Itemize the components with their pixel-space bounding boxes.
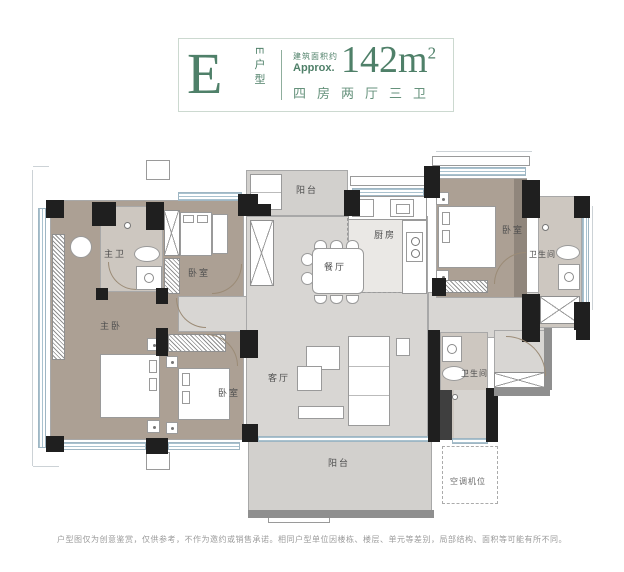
sofa: [348, 336, 390, 426]
pillow: [197, 215, 208, 223]
room-label-kitchen: 厨房: [374, 231, 396, 240]
lamp-dot: [171, 427, 174, 430]
sink-icon: [558, 264, 580, 290]
window-band: [352, 188, 424, 196]
stove-icon: [406, 232, 423, 262]
wall-segment: [522, 294, 540, 342]
shower-head-icon: [542, 224, 549, 231]
wardrobe-icon: [164, 210, 180, 256]
desk: [212, 214, 228, 254]
room-label-master-bath: 主卫: [104, 250, 126, 259]
room-label-bath-mid: 卫生间: [461, 370, 488, 378]
wall-segment: [96, 288, 108, 300]
exterior-ledge: [350, 176, 428, 186]
room-label-bedroom4: 卧室: [502, 226, 524, 235]
sliding-door-band: [258, 436, 430, 442]
lamp-dot: [153, 426, 156, 429]
window-band: [582, 212, 589, 310]
floor-balcony-bottom: [248, 438, 432, 512]
sink-basin: [447, 344, 457, 354]
exterior-ledge: [146, 160, 170, 180]
bed: [100, 354, 160, 418]
wall-segment: [424, 166, 440, 198]
wall-segment: [432, 278, 446, 296]
bed: [438, 206, 496, 268]
exterior-ledge: [146, 452, 170, 470]
wardrobe-icon: [52, 234, 65, 360]
window-band: [452, 438, 488, 444]
sofa-cushion-line: [349, 366, 389, 367]
pillow: [442, 230, 450, 243]
side-table: [396, 338, 410, 356]
storage-cabinet: [250, 220, 274, 286]
room-label-master-bedroom: 主卧: [100, 322, 122, 331]
outline-line: [33, 466, 59, 467]
wall-segment: [92, 202, 116, 226]
burner-dot: [411, 237, 420, 246]
outline-line: [592, 206, 593, 310]
shower-head-icon: [124, 222, 131, 229]
round-stool: [70, 236, 92, 258]
lamp-dot: [171, 361, 174, 364]
wall-segment: [240, 330, 258, 358]
wall-segment: [344, 190, 360, 216]
window-band: [60, 442, 146, 450]
sink-basin: [144, 273, 154, 283]
wall-segment-gray: [494, 388, 550, 396]
pillow: [183, 215, 194, 223]
floor-shower: [454, 390, 488, 440]
wall-segment-gray: [248, 510, 434, 518]
toilet-icon: [134, 246, 160, 262]
pillow: [149, 360, 157, 373]
wall-segment: [156, 288, 168, 304]
bed: [180, 212, 212, 256]
tv-cabinet: [298, 406, 344, 419]
room-label-ac-unit: 空调机位: [450, 478, 486, 486]
wall-segment: [46, 200, 64, 218]
window-band: [168, 442, 240, 450]
room-label-balcony-bottom: 阳台: [328, 459, 350, 468]
coffee-table: [297, 366, 322, 391]
wall-segment: [576, 326, 590, 340]
room-label-dining: 餐厅: [324, 263, 346, 272]
nightstand: [166, 356, 178, 368]
nightstand: [166, 422, 178, 434]
outline-line: [32, 170, 33, 466]
wall-segment: [574, 196, 590, 218]
wall-segment: [247, 204, 271, 216]
sink-icon: [442, 336, 462, 362]
window-band: [178, 192, 242, 201]
cabinet-icon: [440, 280, 488, 293]
wall-segment: [146, 438, 168, 454]
pillow: [149, 378, 157, 391]
wall-segment: [486, 388, 498, 442]
room-label-bedroom3: 卧室: [218, 389, 240, 398]
wall-segment: [522, 180, 540, 218]
ac-unit-box: [442, 446, 498, 504]
sink-basin: [564, 272, 574, 282]
wall-segment: [242, 424, 258, 442]
window-band: [38, 208, 46, 448]
room-label-bath-right: 卫生间: [529, 251, 556, 259]
wall-segment: [146, 202, 164, 230]
shower-head-icon: [452, 394, 458, 400]
wall-segment: [428, 330, 440, 442]
disclaimer: 户型图仅为创意鉴赏，仅供参考，不作为邀约或销售承诺。相同户型单位因楼栋、楼层、单…: [0, 534, 624, 545]
room-label-living: 客厅: [268, 374, 290, 383]
lamp-dot: [442, 198, 445, 201]
floor-plan: 阳台 厨房 餐厅 主卫 卧室 主卧 卧室 客厅 卧室 卫生间 卫生间 阳台 空调…: [0, 0, 624, 572]
kitchen-sink-icon: [390, 199, 414, 217]
window-band: [434, 167, 526, 176]
nightstand: [147, 420, 160, 433]
sofa-cushion-line: [349, 395, 389, 396]
wall-segment-gray: [544, 328, 552, 390]
toilet-icon: [556, 245, 580, 260]
sink-basin: [396, 204, 410, 214]
room-label-balcony-top: 阳台: [296, 186, 318, 195]
pillow: [442, 212, 450, 225]
pillow: [182, 391, 190, 404]
wall-segment: [156, 328, 168, 356]
burner-dot: [411, 249, 420, 258]
pillow: [182, 373, 190, 386]
outline-line: [436, 151, 532, 152]
exterior-ledge: [432, 156, 530, 166]
cabinet-shelf-line: [251, 192, 281, 193]
sink-icon: [136, 266, 162, 290]
shower-glass-wall: [440, 390, 452, 440]
wall-segment: [46, 436, 64, 452]
room-label-bedroom2: 卧室: [188, 269, 210, 278]
outline-line: [33, 166, 49, 167]
